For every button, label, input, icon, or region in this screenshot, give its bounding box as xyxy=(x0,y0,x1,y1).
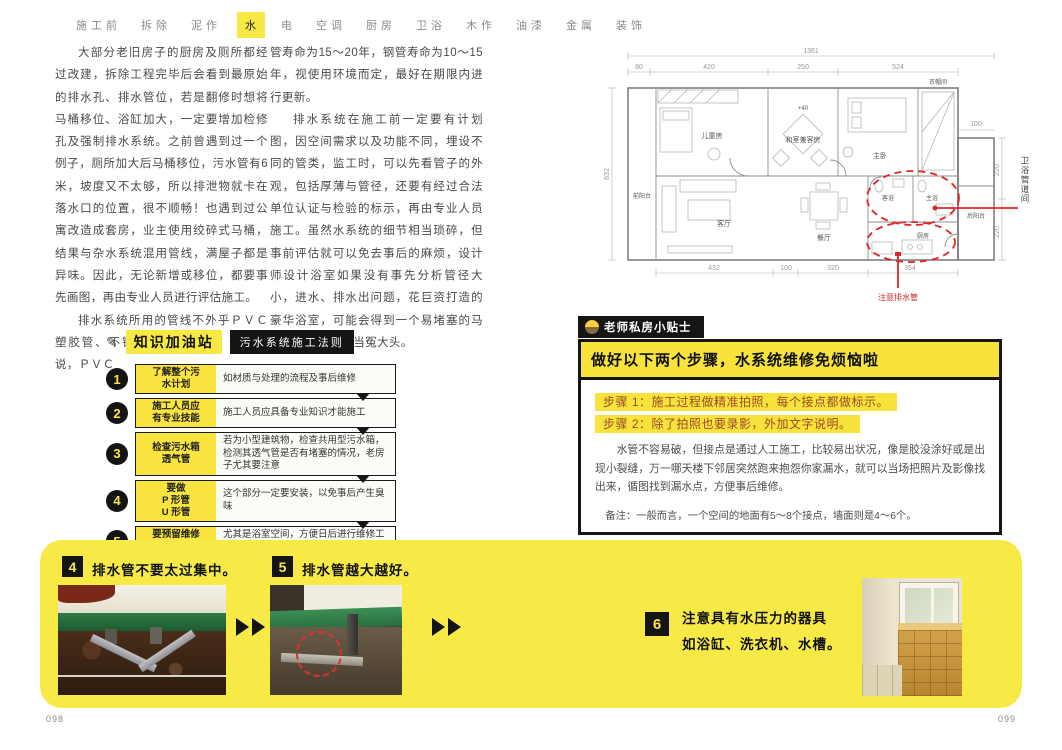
step-box: 了解整个污 水计划 如材质与处理的流程及事后维修 xyxy=(135,364,396,394)
dim-right-1: 220 xyxy=(994,226,1001,238)
paragraph: 大部分老旧房子的厨房及厕所都经过改建，拆除工程完毕后会看到最原始的排水孔、排水管… xyxy=(55,42,268,310)
room-dining: 餐厅 xyxy=(817,233,831,242)
knowledge-step-1: 1 了解整个污 水计划 如材质与处理的流程及事后维修 xyxy=(106,364,396,394)
room-tatami-note: +40 xyxy=(798,106,809,112)
room-front-balcony: 前阳台 xyxy=(633,192,651,200)
tips-tab: 老师私房小贴士 xyxy=(578,316,704,338)
room-living: 客厅 xyxy=(717,219,731,228)
nav-item-10: 金属 xyxy=(562,12,600,38)
knowledge-step-3: 3 检查污水箱 透气管 若为小型建筑物，检查共用型污水箱，检测其透气管是否有堵塞… xyxy=(106,432,396,476)
tips-step-1-text: 步骤 1：施工过程做精准拍照，每个接点都做标示。 xyxy=(595,393,897,411)
photo-bathroom-tub xyxy=(862,578,962,696)
tips-note: 备注：一般而言，一个空间的地面有5～8个接点，墙面则是4～6个。 xyxy=(595,507,985,522)
tips-step-1: 步骤 1：施工过程做精准拍照，每个接点都做标示。 xyxy=(595,393,985,411)
floor-plan: 1361 80 420 250 524 832 100 220 220 432 … xyxy=(598,46,1038,314)
knowledge-step-4: 4 要做 P 形管 U 形管 这个部分一定要安装，以免事后产生臭味 xyxy=(106,480,396,522)
dim-bottom-2: 320 xyxy=(827,265,839,272)
knowledge-steps: 1 了解整个污 水计划 如材质与处理的流程及事后维修 2 施工人员应 有专业技能… xyxy=(106,364,396,557)
down-arrow-icon xyxy=(356,393,370,401)
annotation-pipe-duct: 卫浴管道间 xyxy=(1019,156,1031,204)
tips-title: 做好以下两个步骤，水系统维修免烦恼啦 xyxy=(581,342,999,380)
room-kitchen: 厨房 xyxy=(917,232,929,240)
dim-bottom-3: 354 xyxy=(904,265,916,272)
step-desc: 若为小型建筑物，检查共用型污水箱，检测其透气管是否有堵塞的情况，老房子尤其要注意 xyxy=(216,433,395,475)
step-desc: 这个部分一定要安装，以免事后产生臭味 xyxy=(216,481,395,521)
knowledge-title: 知识加油站 xyxy=(126,330,222,354)
photo-large-pipe xyxy=(270,585,402,695)
nav-item-3-active: 水 xyxy=(237,12,265,38)
dim-top-3: 524 xyxy=(892,64,904,71)
step-box: 施工人员应 有专业技能 施工人员应具备专业知识才能施工 xyxy=(135,398,396,428)
nav-item-8: 木作 xyxy=(462,12,500,38)
step-box: 要做 P 形管 U 形管 这个部分一定要安装，以免事后产生臭味 xyxy=(135,480,396,522)
nav-item-11: 装饰 xyxy=(612,12,650,38)
tips-body-box: 做好以下两个步骤，水系统维修免烦恼啦 步骤 1：施工过程做精准拍照，每个接点都做… xyxy=(578,339,1002,535)
step-number-badge: 2 xyxy=(106,402,128,424)
gallery-caption-5: 排水管越大越好。 xyxy=(302,559,418,579)
gallery-caption-6-line2: 如浴缸、洗衣机、水槽。 xyxy=(682,632,842,658)
nav-item-7: 卫浴 xyxy=(412,12,450,38)
room-master: 主卧 xyxy=(873,151,887,160)
gallery-num-5: 5 xyxy=(272,556,293,577)
step-number-badge: 3 xyxy=(106,443,128,465)
tips-paragraph: 水管不容易破，但接点是通过人工施工，比较易出状况，像是胶没涂好或是出现小裂缝，万… xyxy=(595,441,985,497)
dim-right-0: 220 xyxy=(994,164,1001,176)
paragraph: 管寿命为15～20年，钢管寿命为10～15年，视使用环境而定，最好在期限内进行更… xyxy=(270,42,483,109)
room-tatami: 和室兼客房 xyxy=(786,135,821,144)
annotation-drain-note: 注意排水管 xyxy=(878,292,918,302)
dim-bottom-1: 100 xyxy=(780,265,792,272)
gallery-caption-6: 注意具有水压力的器具 如浴缸、洗衣机、水槽。 xyxy=(682,606,842,658)
nav-item-0: 施工前 xyxy=(72,12,125,38)
room-back-balcony: 后阳台 xyxy=(967,212,985,220)
step-label: 施工人员应 有专业技能 xyxy=(136,399,216,427)
knowledge-step-2: 2 施工人员应 有专业技能 施工人员应具备专业知识才能施工 xyxy=(106,398,396,428)
forward-arrows-icon xyxy=(432,618,461,636)
room-closet: 衣帽间 xyxy=(929,78,947,86)
dim-left: 832 xyxy=(604,168,611,180)
nav-item-9: 油漆 xyxy=(512,12,550,38)
worker-icon xyxy=(585,320,599,334)
tips-box: 老师私房小贴士 做好以下两个步骤，水系统维修免烦恼啦 步骤 1：施工过程做精准拍… xyxy=(578,316,1002,535)
knowledge-tag: 污水系统施工法则 xyxy=(230,330,354,354)
step-number-badge: 1 xyxy=(106,368,128,390)
room-guest-bath: 客浴 xyxy=(882,194,894,202)
dim-top-0: 80 xyxy=(635,64,643,71)
paragraph: 排水系统在施工前一定要有计划图，因空间需求以及功能不同，埋设不同的管类，监工时，… xyxy=(270,109,483,354)
down-arrow-icon xyxy=(356,427,370,435)
tips-tab-label: 老师私房小贴士 xyxy=(604,319,692,335)
chapter-nav: 施工前 拆除 泥作 水 电 空调 厨房 卫浴 木作 油漆 金属 装饰 xyxy=(72,12,650,38)
pencil-icon: ✎ xyxy=(106,334,118,351)
tips-step-2: 步骤 2：除了拍照也要录影，外加文字说明。 xyxy=(595,415,985,433)
gallery-band: 4 排水管不要太过集中。 5 排水管越大越好。 6 注意具有水压力的器具 如浴缸… xyxy=(40,540,1022,708)
nav-item-6: 厨房 xyxy=(362,12,400,38)
article-column-1: 大部分老旧房子的厨房及厕所都经过改建，拆除工程完毕后会看到最原始的排水孔、排水管… xyxy=(55,42,268,376)
forward-arrows-icon xyxy=(236,618,265,636)
photo-drain-pipes xyxy=(58,585,226,695)
dim-top-2: 250 xyxy=(797,64,809,71)
nav-item-5: 空调 xyxy=(312,12,350,38)
step-label: 检查污水箱 透气管 xyxy=(136,433,216,475)
dim-total: 1361 xyxy=(803,48,819,55)
knowledge-header: ✎ 知识加油站 污水系统施工法则 xyxy=(106,330,396,354)
down-arrow-icon xyxy=(356,521,370,529)
knowledge-box: ✎ 知识加油站 污水系统施工法则 1 了解整个污 水计划 如材质与处理的流程及事… xyxy=(106,330,396,561)
article-column-2: 管寿命为15～20年，钢管寿命为10～15年，视使用环境而定，最好在期限内进行更… xyxy=(270,42,483,354)
page-number-left: 098 xyxy=(46,714,64,724)
step-number-badge: 4 xyxy=(106,490,128,512)
gallery-num-4: 4 xyxy=(62,556,83,577)
step-desc: 施工人员应具备专业知识才能施工 xyxy=(216,399,395,427)
step-label: 了解整个污 水计划 xyxy=(136,365,216,393)
room-master-bath: 主浴 xyxy=(926,194,938,202)
nav-item-1: 拆除 xyxy=(137,12,175,38)
step-desc: 如材质与处理的流程及事后维修 xyxy=(216,365,395,393)
gallery-num-6: 6 xyxy=(645,612,669,636)
tips-step-2-text: 步骤 2：除了拍照也要录影，外加文字说明。 xyxy=(595,415,860,433)
dim-bottom-0: 432 xyxy=(708,265,720,272)
nav-item-2: 泥作 xyxy=(187,12,225,38)
dim-right-top: 100 xyxy=(970,121,982,128)
step-box: 检查污水箱 透气管 若为小型建筑物，检查共用型污水箱，检测其透气管是否有堵塞的情… xyxy=(135,432,396,476)
room-children: 儿童房 xyxy=(702,131,723,140)
book-spread: 施工前 拆除 泥作 水 电 空调 厨房 卫浴 木作 油漆 金属 装饰 大部分老旧… xyxy=(0,0,1062,750)
gallery-caption-6-line1: 注意具有水压力的器具 xyxy=(682,606,842,632)
down-arrow-icon xyxy=(356,475,370,483)
step-label: 要做 P 形管 U 形管 xyxy=(136,481,216,521)
floor-plan-drawing: 1361 80 420 250 524 832 100 220 220 432 … xyxy=(598,46,1038,314)
gallery-caption-4: 排水管不要太过集中。 xyxy=(92,559,237,579)
dim-top-1: 420 xyxy=(703,64,715,71)
nav-item-4: 电 xyxy=(277,12,300,38)
page-number-right: 099 xyxy=(998,714,1016,724)
